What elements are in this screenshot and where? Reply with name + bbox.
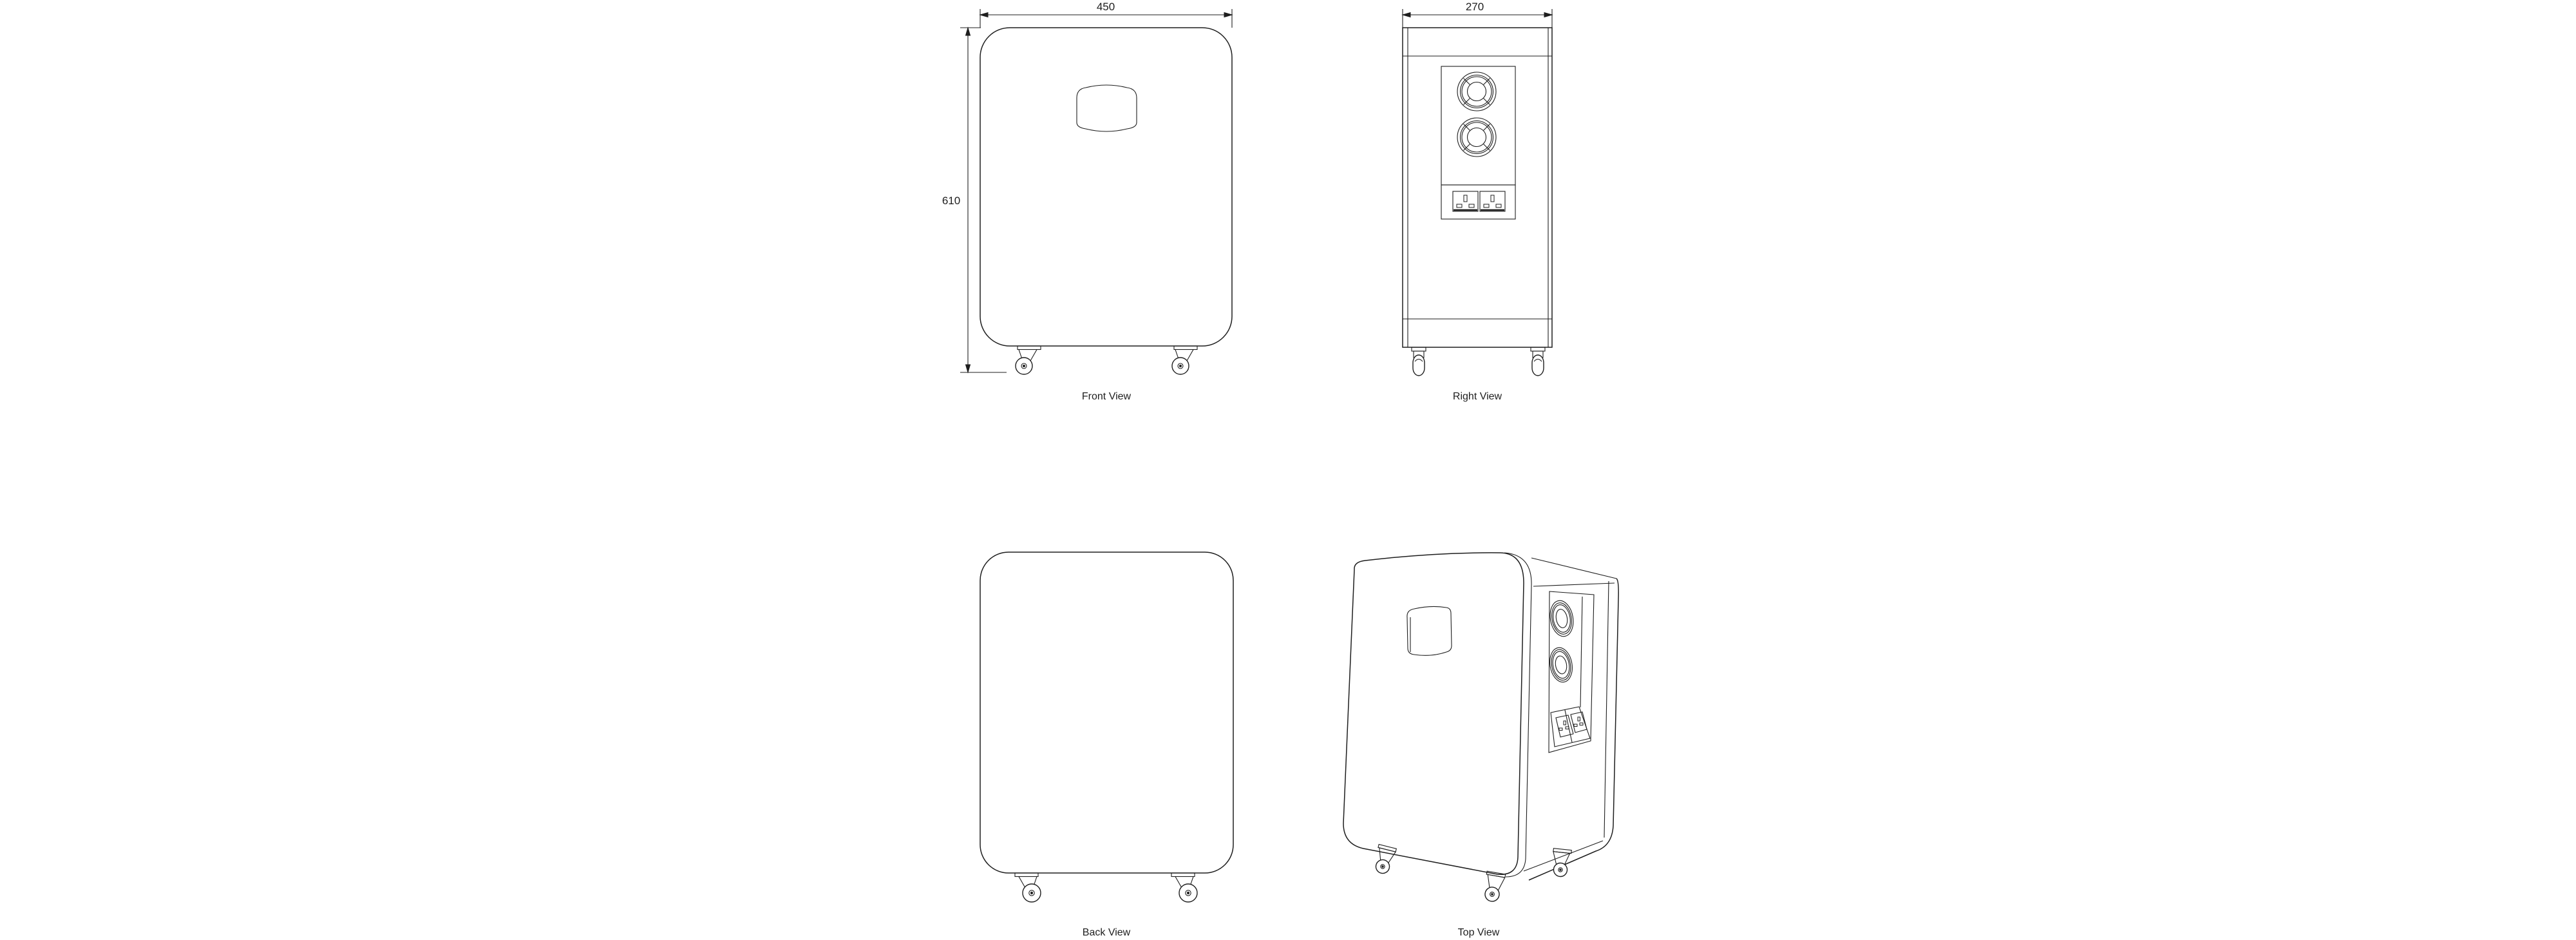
fan-grill-icon [1548, 599, 1576, 638]
caster-icon [1482, 871, 1505, 903]
arrowhead-left [1403, 13, 1410, 17]
caster-icon [1171, 873, 1197, 902]
arrowhead-left [980, 13, 988, 17]
right-view [1403, 9, 1552, 376]
panel-seam-line [1533, 583, 1615, 586]
right-body-outline [1403, 28, 1552, 347]
view-label-right: Right View [1453, 391, 1502, 402]
front-view [960, 9, 1232, 374]
perspective-side-face [1529, 579, 1618, 880]
power-outlet-icon [1453, 191, 1478, 211]
front-height-dimension [960, 28, 1007, 372]
power-outlet-icon [1480, 191, 1505, 211]
dimension-label-width: 450 [1097, 1, 1115, 13]
arrowhead-up [966, 28, 971, 35]
handle-cutout [1407, 606, 1452, 655]
caster-icon [1412, 347, 1426, 376]
arrowhead-down [966, 365, 971, 372]
fan-grill-icon [1548, 646, 1575, 684]
arrowhead-right [1544, 13, 1552, 17]
dimension-label-height: 610 [942, 195, 960, 207]
handle-cutout [1077, 85, 1137, 131]
back-view [980, 552, 1233, 902]
dimension-label-depth: 270 [1466, 1, 1484, 13]
arrowhead-right [1224, 13, 1232, 17]
fan-panel [1441, 66, 1515, 185]
view-label-back: Back View [1083, 927, 1131, 938]
caster-icon [1172, 346, 1197, 374]
front-body-outline [980, 28, 1232, 346]
caster-icon [1531, 347, 1545, 376]
back-body-outline [980, 552, 1233, 873]
side-panel [1549, 591, 1594, 753]
caster-icon [1015, 873, 1041, 902]
view-label-top: Top View [1458, 927, 1500, 938]
caster-icon [1372, 845, 1396, 876]
corner-band [1504, 553, 1531, 877]
drawing-sheet: 450 610 270 Front View Right View Back V… [0, 0, 2576, 940]
power-outlet-icon [1556, 715, 1573, 737]
fan-grill-icon [1457, 118, 1496, 157]
perspective-front-face [1343, 553, 1524, 874]
caster-icon [1016, 346, 1041, 374]
fan-grill-icon [1457, 72, 1496, 111]
top-view [1343, 553, 1618, 903]
top-face-edge [1531, 558, 1616, 579]
side-panel-depth-line [1580, 597, 1582, 707]
view-label-front: Front View [1082, 391, 1132, 402]
power-outlet-panel [1551, 707, 1590, 747]
panel-seam-line [1604, 581, 1609, 838]
technical-drawing: 450 610 270 Front View Right View Back V… [0, 0, 2576, 940]
